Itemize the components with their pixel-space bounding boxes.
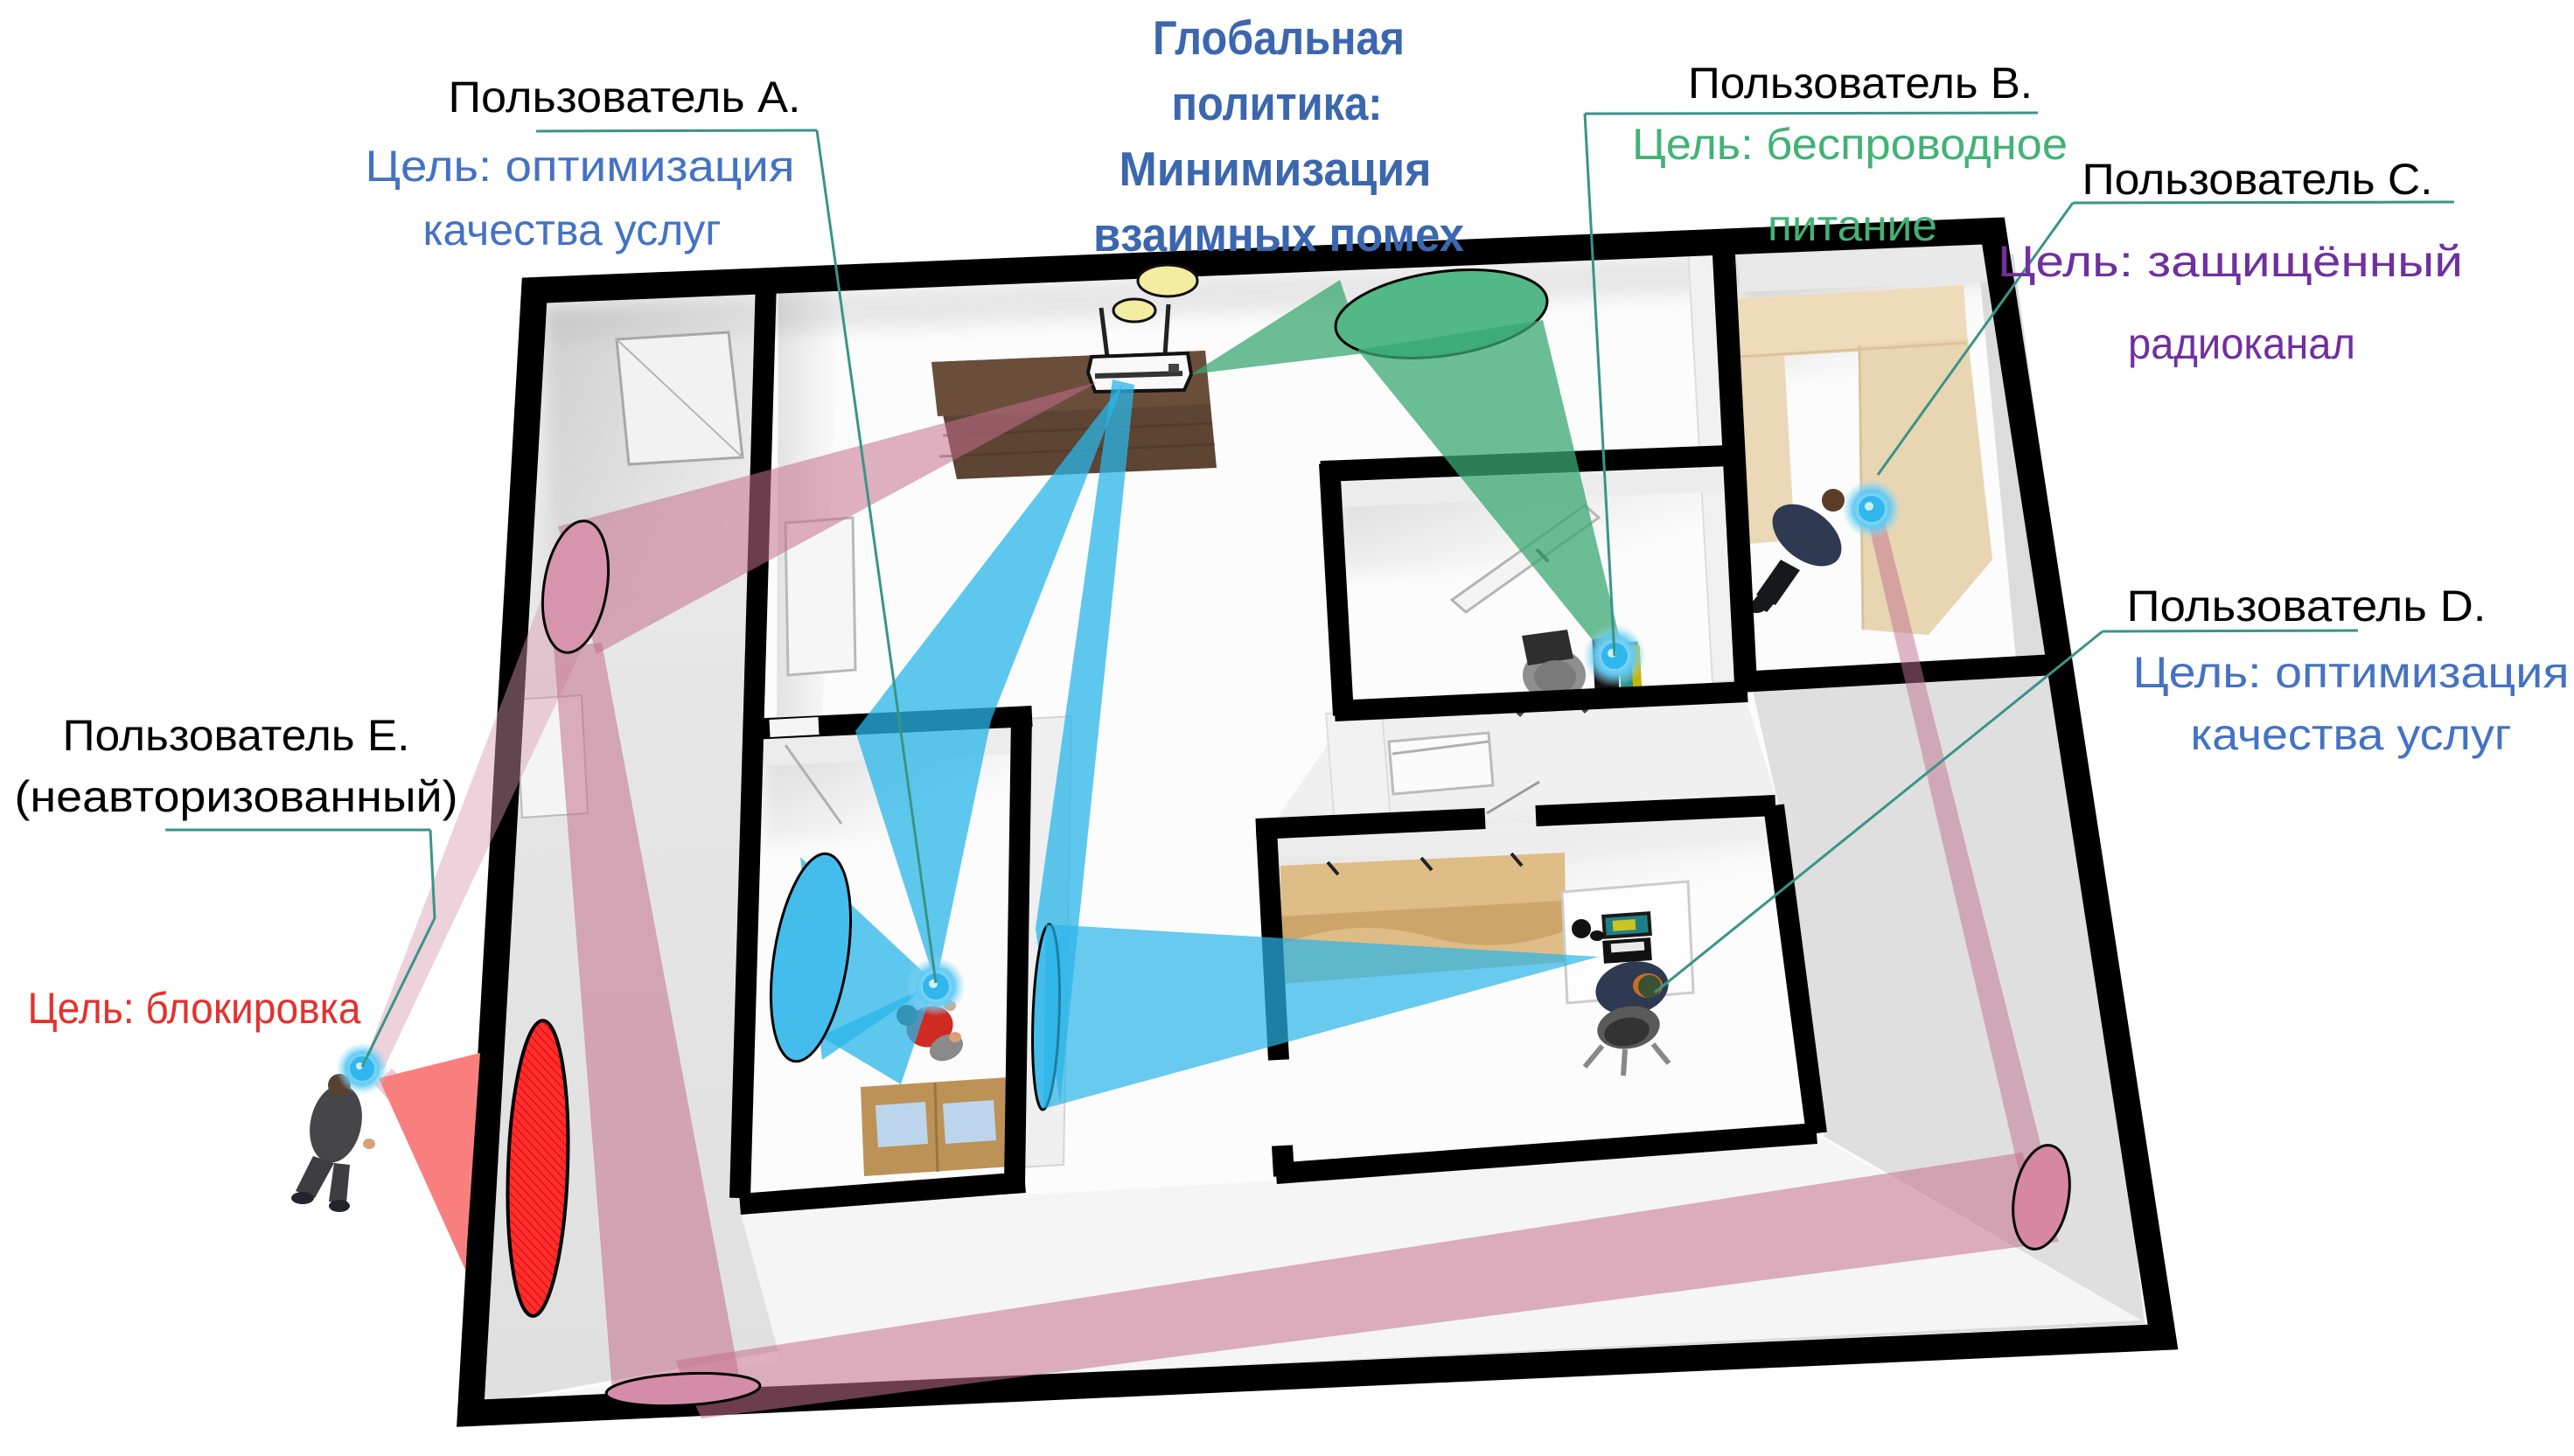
svg-text:Цель: беспроводное: Цель: беспроводное xyxy=(1632,120,2068,169)
svg-text:качества услуг: качества услуг xyxy=(2191,710,2512,759)
svg-text:Пользователь Е.: Пользователь Е. xyxy=(63,711,410,760)
svg-text:Глобальная: Глобальная xyxy=(1153,10,1405,65)
svg-text:(неавторизованный): (неавторизованный) xyxy=(15,772,458,821)
svg-text:качества услуг: качества услуг xyxy=(423,206,722,254)
svg-text:Пользователь В.: Пользователь В. xyxy=(1688,59,2033,108)
svg-text:Минимизация: Минимизация xyxy=(1120,142,1432,196)
svg-text:радиоканал: радиоканал xyxy=(2128,319,2355,368)
svg-text:Цель: защищённый: Цель: защищённый xyxy=(1998,237,2463,286)
svg-text:питание: питание xyxy=(1768,201,1937,250)
svg-text:Цель: оптимизация: Цель: оптимизация xyxy=(366,142,795,191)
svg-text:Цель: оптимизация: Цель: оптимизация xyxy=(2133,648,2570,697)
svg-text:Пользователь А.: Пользователь А. xyxy=(449,73,801,122)
svg-text:Пользователь D.: Пользователь D. xyxy=(2127,582,2487,630)
svg-text:политика:: политика: xyxy=(1172,76,1383,130)
svg-text:Пользователь С.: Пользователь С. xyxy=(2082,155,2433,204)
svg-text:взаимных помех: взаимных помех xyxy=(1093,207,1464,261)
svg-text:Цель: блокировка: Цель: блокировка xyxy=(28,984,361,1033)
